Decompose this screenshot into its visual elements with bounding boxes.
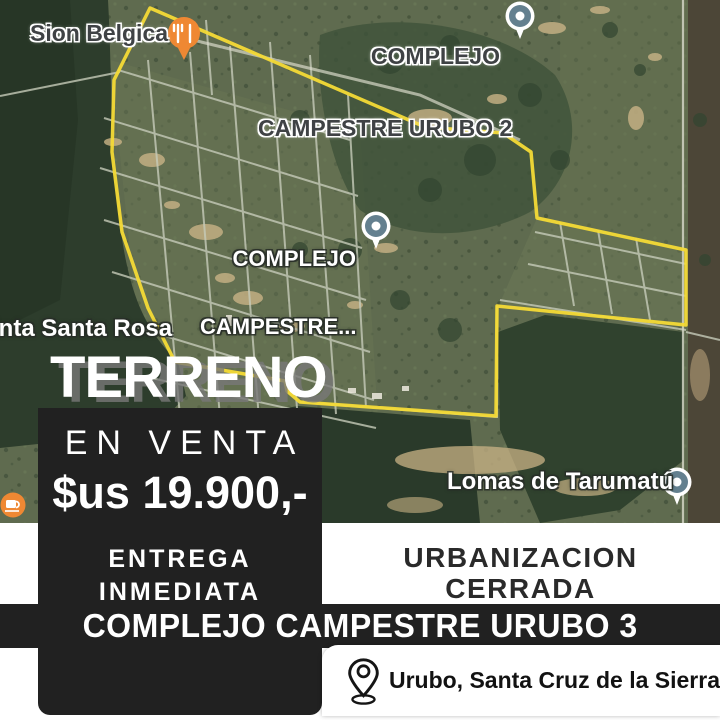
map-label-urubo2-line1: COMPLEJO [258, 45, 500, 69]
map-label-urubo2-line2: CAMPESTRE URUBO 2 [258, 117, 500, 141]
location-text: Urubo, Santa Cruz de la Sierra [389, 667, 720, 694]
headline-terreno: TERRENO [50, 344, 327, 411]
map-label-urubo2: COMPLEJO CAMPESTRE URUBO 2 [258, 0, 500, 188]
map-label-complejo-line1: COMPLEJO [200, 248, 356, 271]
map-label-sion-belgica: Sion Belgica [30, 22, 168, 46]
coffee-pin-icon [1, 493, 26, 518]
location-pin-icon [346, 655, 381, 707]
feature-text: URBANIZACION CERRADA [321, 542, 720, 605]
ad-flyer: Sion Belgica COMPLEJO CAMPESTRE URUBO 2 … [0, 0, 720, 720]
offer-panel: EN VENTA $us 19.900,- ENTREGA INMEDIATA [38, 408, 322, 715]
delivery-line1: ENTREGA [38, 543, 322, 576]
project-name-text: COMPLEJO CAMPESTRE URUBO 3 [82, 607, 637, 645]
feature-line2: CERRADA [321, 573, 720, 604]
map-label-complejo-line2: CAMPESTRE... [200, 316, 356, 339]
map-label-santa-rosa: inta Santa Rosa [0, 317, 172, 342]
price-text: $us 19.900,- [38, 467, 322, 519]
map-label-lomas-tarumatu: Lomas de Tarumatú [447, 470, 673, 495]
feature-line1: URBANIZACION [321, 542, 720, 573]
delivery-text: ENTREGA INMEDIATA [38, 543, 322, 608]
sale-label: EN VENTA [38, 424, 322, 463]
location-card: Urubo, Santa Cruz de la Sierra [322, 645, 720, 716]
project-name-bar: COMPLEJO CAMPESTRE URUBO 3 [0, 604, 720, 648]
